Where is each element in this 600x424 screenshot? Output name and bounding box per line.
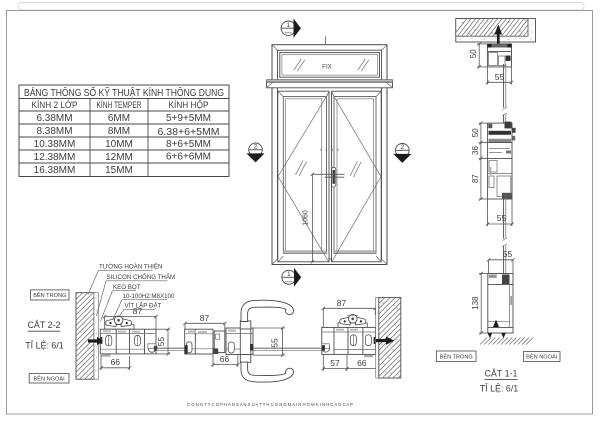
svg-text:87: 87 [133, 306, 143, 316]
svg-text:10-100H2:M8X100: 10-100H2:M8X100 [123, 293, 175, 300]
svg-text:12MM: 12MM [105, 152, 133, 163]
svg-text:2: 2 [400, 144, 404, 151]
svg-text:BẢNG THÔNG SỐ KỸ THUẬT KÍNH T: BẢNG THÔNG SỐ KỸ THUẬT KÍNH THÔNG DỤNG [24, 85, 224, 99]
svg-text:1: 1 [325, 148, 327, 152]
svg-text:10.38MM: 10.38MM [34, 139, 76, 150]
svg-text:1060: 1060 [303, 210, 310, 226]
svg-text:CẮT 2-2: CẮT 2-2 [28, 320, 61, 331]
svg-text:10MM: 10MM [105, 139, 133, 150]
svg-text:1: 1 [331, 148, 333, 152]
svg-text:6.38MM: 6.38MM [36, 113, 72, 124]
svg-text:50: 50 [469, 49, 478, 58]
svg-text:66: 66 [220, 354, 230, 364]
svg-text:BÊN TRONG: BÊN TRONG [33, 291, 66, 299]
svg-text:16.38MM: 16.38MM [34, 165, 76, 176]
svg-text:57: 57 [330, 358, 340, 368]
svg-text:55: 55 [497, 213, 507, 223]
svg-text:FIX: FIX [322, 63, 332, 70]
svg-text:8MM: 8MM [108, 126, 130, 137]
svg-text:87: 87 [200, 313, 210, 323]
svg-text:KÍNH HỘP: KÍNH HỘP [169, 100, 209, 111]
svg-text:12.38MM: 12.38MM [34, 152, 76, 163]
svg-text:C O N G T Y C O P H A N S: C O N G T Y C O P H A N S A N X U A T T … [187, 402, 353, 407]
svg-text:1: 1 [287, 271, 291, 278]
svg-text:KÍNH TEMPER: KÍNH TEMPER [97, 100, 142, 111]
svg-text:BÊN NGOÀI: BÊN NGOÀI [34, 375, 66, 383]
svg-text:138: 138 [471, 296, 480, 310]
svg-text:2: 2 [254, 144, 258, 151]
svg-text:TỈ LỆ: 6/1: TỈ LỆ: 6/1 [25, 340, 64, 352]
svg-text:CẮT 1-1: CẮT 1-1 [485, 368, 518, 379]
svg-text:1: 1 [286, 22, 290, 29]
svg-text:VÍT LẮP ĐẶT: VÍT LẮP ĐẶT [125, 301, 162, 309]
svg-text:55: 55 [156, 337, 166, 347]
svg-text:BÊN NGOÀI: BÊN NGOÀI [526, 353, 558, 361]
svg-text:2: 2 [320, 148, 322, 152]
svg-text:5+9+5MM: 5+9+5MM [166, 113, 211, 124]
svg-text:6+6+6MM: 6+6+6MM [166, 152, 211, 163]
svg-text:8.38MM: 8.38MM [36, 126, 72, 137]
svg-text:2: 2 [337, 148, 339, 152]
svg-text:6MM: 6MM [108, 113, 130, 124]
svg-text:KÍNH 2 LỚP: KÍNH 2 LỚP [32, 100, 78, 111]
svg-text:SILICON CHỐNG THẤM: SILICON CHỐNG THẤM [107, 274, 176, 281]
svg-text:6.38+6+5MM: 6.38+6+5MM [158, 127, 220, 138]
svg-text:KEO BỌT: KEO BỌT [113, 284, 141, 291]
svg-text:55: 55 [495, 72, 505, 82]
svg-text:87: 87 [471, 174, 480, 183]
svg-text:TỈ LỆ: 6/1: TỈ LỆ: 6/1 [480, 383, 519, 395]
svg-text:8+6+5MM: 8+6+5MM [166, 139, 211, 150]
svg-text:BÊN TRONG: BÊN TRONG [440, 352, 473, 360]
svg-text:55: 55 [270, 338, 280, 348]
svg-text:55: 55 [503, 249, 513, 259]
svg-text:15MM: 15MM [105, 165, 133, 176]
svg-text:50: 50 [471, 128, 480, 137]
svg-text:87: 87 [337, 298, 347, 308]
svg-text:36: 36 [471, 146, 480, 155]
svg-text:66: 66 [111, 357, 121, 367]
svg-text:66: 66 [357, 358, 367, 368]
svg-text:TƯỜNG HOÀN THIỆN: TƯỜNG HOÀN THIỆN [99, 262, 162, 270]
